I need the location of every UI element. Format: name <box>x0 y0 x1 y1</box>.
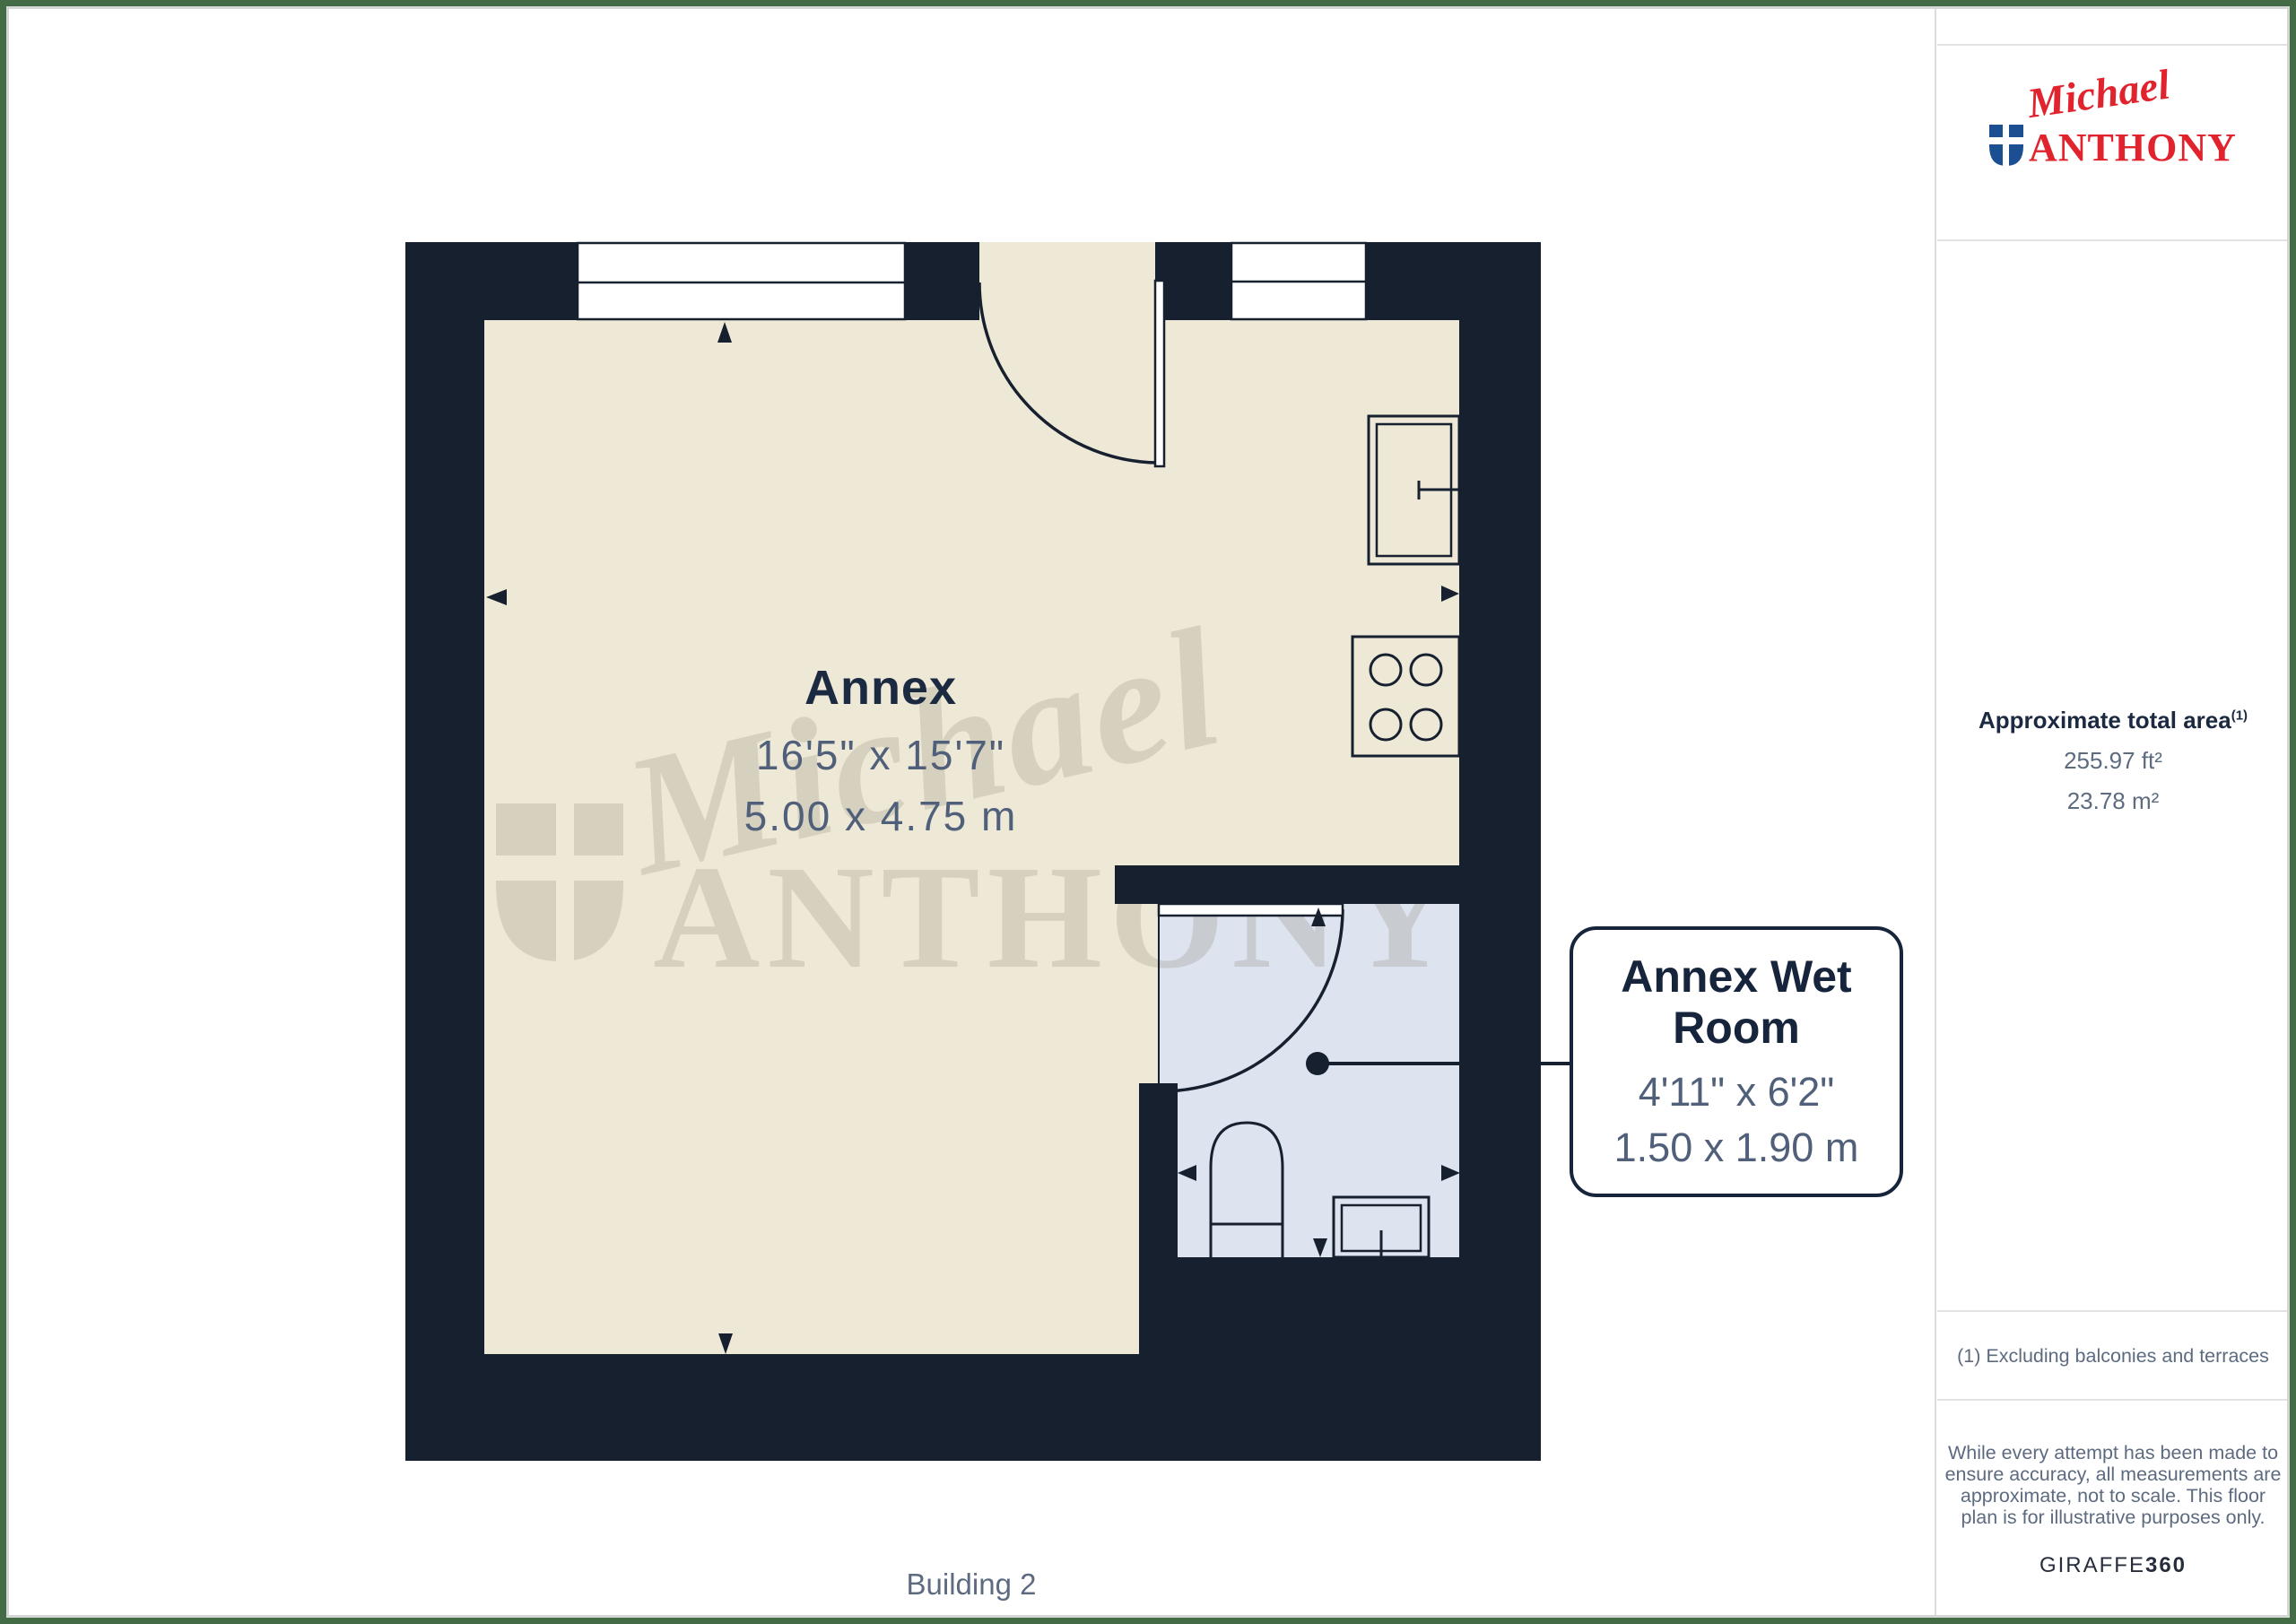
watermark-shield-cross-vertical <box>556 803 574 961</box>
area-title: Approximate total area(1) <box>1937 707 2289 734</box>
annex-room-name: Annex <box>804 661 957 715</box>
area-summary: Approximate total area(1) 255.97 ft² 23.… <box>1937 707 2289 815</box>
entrance-door-leaf <box>1155 281 1164 466</box>
watermark-name-text: ANTHONY <box>653 835 1459 999</box>
sidebar-divider <box>1937 1399 2289 1401</box>
agency-logo-script: Michael <box>2024 53 2226 128</box>
sidebar-divider <box>1937 44 2289 46</box>
wet-room-dims-imperial: 4'11" x 6'2" <box>1573 1064 1900 1120</box>
wall-top <box>405 242 1541 320</box>
giraffe360-brand-name: GIRAFFE <box>2039 1553 2145 1577</box>
agency-logo-name: ANTHONY <box>2029 125 2244 170</box>
annex-dims-metric: 5.00 x 4.75 m <box>744 793 1018 839</box>
giraffe360-brand: GIRAFFE360 <box>1937 1553 2289 1578</box>
giraffe360-brand-suffix: 360 <box>2145 1553 2187 1577</box>
disclaimer-line: approximate, not to scale. This floor <box>1937 1485 2289 1507</box>
disclaimer-line: plan is for illustrative purposes only. <box>1937 1507 2289 1528</box>
wet-room-door-leaf <box>1159 904 1343 916</box>
wall-bottom <box>405 1354 1541 1461</box>
agency-shield-icon <box>1989 125 2023 166</box>
disclaimer-line: ensure accuracy, all measurements are <box>1937 1463 2289 1485</box>
area-value-m: 23.78 m² <box>1937 787 2289 815</box>
footnote-excluding-balconies: (1) Excluding balconies and terraces <box>1937 1345 2289 1368</box>
area-title-text: Approximate total area <box>1979 707 2231 734</box>
wall-left <box>405 242 484 1461</box>
sidebar-divider-vertical <box>1935 7 1936 1617</box>
agency-logo: Michael ANTHONY <box>1937 54 2289 197</box>
callout-connector-dot <box>1306 1052 1329 1075</box>
building-label: Building 2 <box>837 1568 1106 1602</box>
area-title-superscript: (1) <box>2231 708 2248 723</box>
wet-room-callout: Annex Wet Room 4'11" x 6'2" 1.50 x 1.90 … <box>1570 926 1903 1197</box>
floorplan-canvas: Michael ANTHONY <box>0 0 1937 1624</box>
watermark-shield-cross-horizontal <box>496 855 623 881</box>
disclaimer: While every attempt has been made to ens… <box>1937 1442 2289 1528</box>
window-large <box>578 243 905 319</box>
wet-room-name: Annex Wet Room <box>1602 951 1871 1054</box>
annex-dims-imperial: 16'5" x 15'7" <box>756 732 1005 778</box>
disclaimer-line: While every attempt has been made to <box>1937 1442 2289 1463</box>
entrance-doorway-gap <box>979 242 1155 320</box>
sidebar-divider <box>1937 239 2289 241</box>
wet-room-dims-metric: 1.50 x 1.90 m <box>1573 1120 1900 1176</box>
sidebar-divider <box>1937 1310 2289 1312</box>
area-value-ft: 255.97 ft² <box>1937 747 2289 775</box>
wall-wet-room-bottom <box>1139 1257 1541 1354</box>
wall-wet-room-top <box>1115 865 1541 904</box>
